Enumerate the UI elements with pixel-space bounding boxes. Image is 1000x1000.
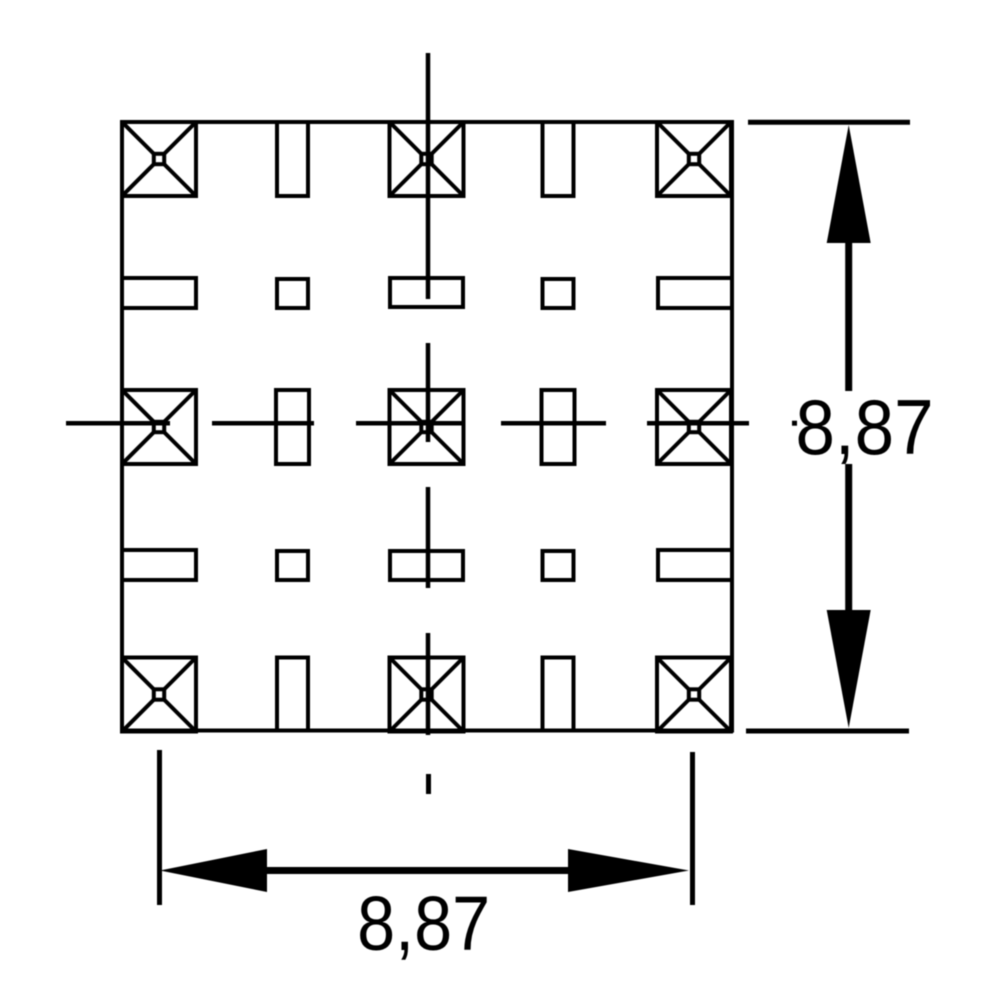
svg-text:8,87: 8,87 <box>357 881 490 967</box>
svg-text:8,87: 8,87 <box>796 383 934 471</box>
